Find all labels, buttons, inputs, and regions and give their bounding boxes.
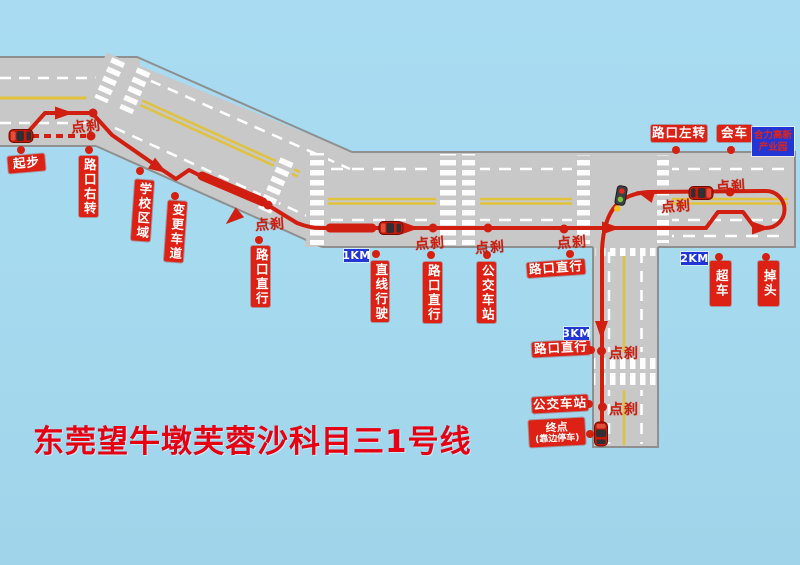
km-badge-1km: 1KM xyxy=(344,249,369,262)
brake-label-5: 点刹 xyxy=(556,231,587,253)
label-straight-drive: 直线行驶 xyxy=(371,261,389,322)
brake-label-7: 点刹 xyxy=(715,175,746,197)
route-map-canvas xyxy=(0,0,800,565)
label-bus-stop-1: 公交车站 xyxy=(477,262,496,323)
page-title: 东莞望牛墩芙蓉沙科目三1号线 xyxy=(33,416,472,461)
label-turn-right: 路口右转 xyxy=(79,156,98,217)
label-turn-left: 路口左转 xyxy=(651,125,707,142)
label-overtake: 超车 xyxy=(710,261,731,306)
brake-label-9: 点刹 xyxy=(609,399,639,419)
park-badge-line1: 合力高新 xyxy=(754,130,792,142)
brake-label-6: 点刹 xyxy=(660,195,691,217)
label-u-turn: 掉头 xyxy=(758,261,779,306)
brake-label-2: 点刹 xyxy=(254,213,285,235)
route-map: 起步 路口右转 学校区域 变更车道 路口直行 直线行驶 路口直行 公交车站 路口… xyxy=(0,0,800,565)
label-meet-vehicle: 会车 xyxy=(717,125,752,142)
km-badge-3km: 3KM xyxy=(564,327,589,340)
label-straight-4: 路口直行 xyxy=(532,339,591,357)
label-end-line1: 终点 xyxy=(545,420,568,434)
brake-label-4: 点刹 xyxy=(474,236,505,258)
km-badge-2km: 2KM xyxy=(681,252,708,265)
brake-label-3: 点刹 xyxy=(414,232,445,254)
label-start: 起步 xyxy=(7,153,45,173)
label-straight-2: 路口直行 xyxy=(423,262,442,323)
label-end-line2: (靠边停车) xyxy=(535,433,580,446)
label-straight-1: 路口直行 xyxy=(251,246,270,307)
label-end: 终点 (靠边停车) xyxy=(528,418,585,448)
brake-label-1: 点刹 xyxy=(70,114,102,137)
park-badge-line2: 产业园 xyxy=(759,142,788,154)
brake-label-8: 点刹 xyxy=(609,343,639,363)
park-badge: 合力高新 产业园 xyxy=(752,127,794,156)
label-bus-stop-2: 公交车站 xyxy=(532,395,589,414)
